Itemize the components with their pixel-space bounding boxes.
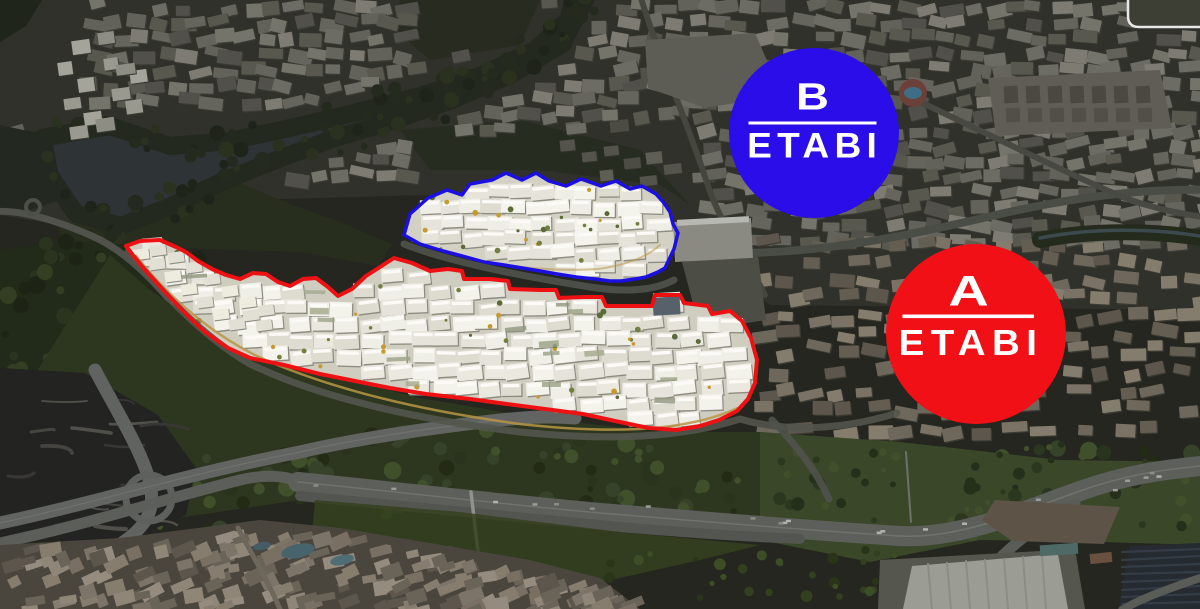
svg-text:A: A (948, 267, 988, 315)
svg-text:ETABI: ETABI (899, 322, 1044, 363)
svg-text:ETABI: ETABI (747, 125, 882, 165)
svg-text:B: B (796, 75, 829, 118)
